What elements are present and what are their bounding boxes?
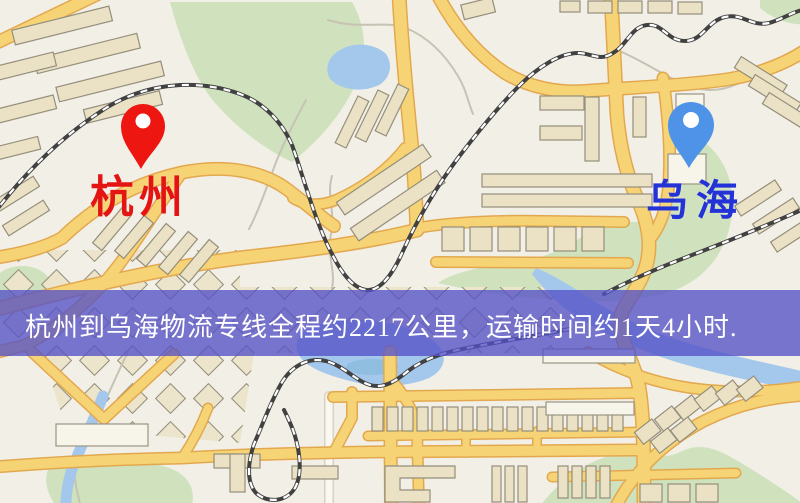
route-map[interactable]: 杭州 乌海 杭州到乌海物流专线全程约2217公里，运输时间约1天4小时.: [0, 0, 800, 503]
route-info-text: 杭州到乌海物流专线全程约2217公里，运输时间约1天4小时.: [0, 290, 800, 344]
origin-city-label: 杭州: [90, 176, 188, 220]
route-info-banner: 杭州到乌海物流专线全程约2217公里，运输时间约1天4小时.: [0, 290, 800, 356]
map-canvas: [0, 0, 800, 503]
destination-city-label: 乌海: [646, 181, 746, 223]
